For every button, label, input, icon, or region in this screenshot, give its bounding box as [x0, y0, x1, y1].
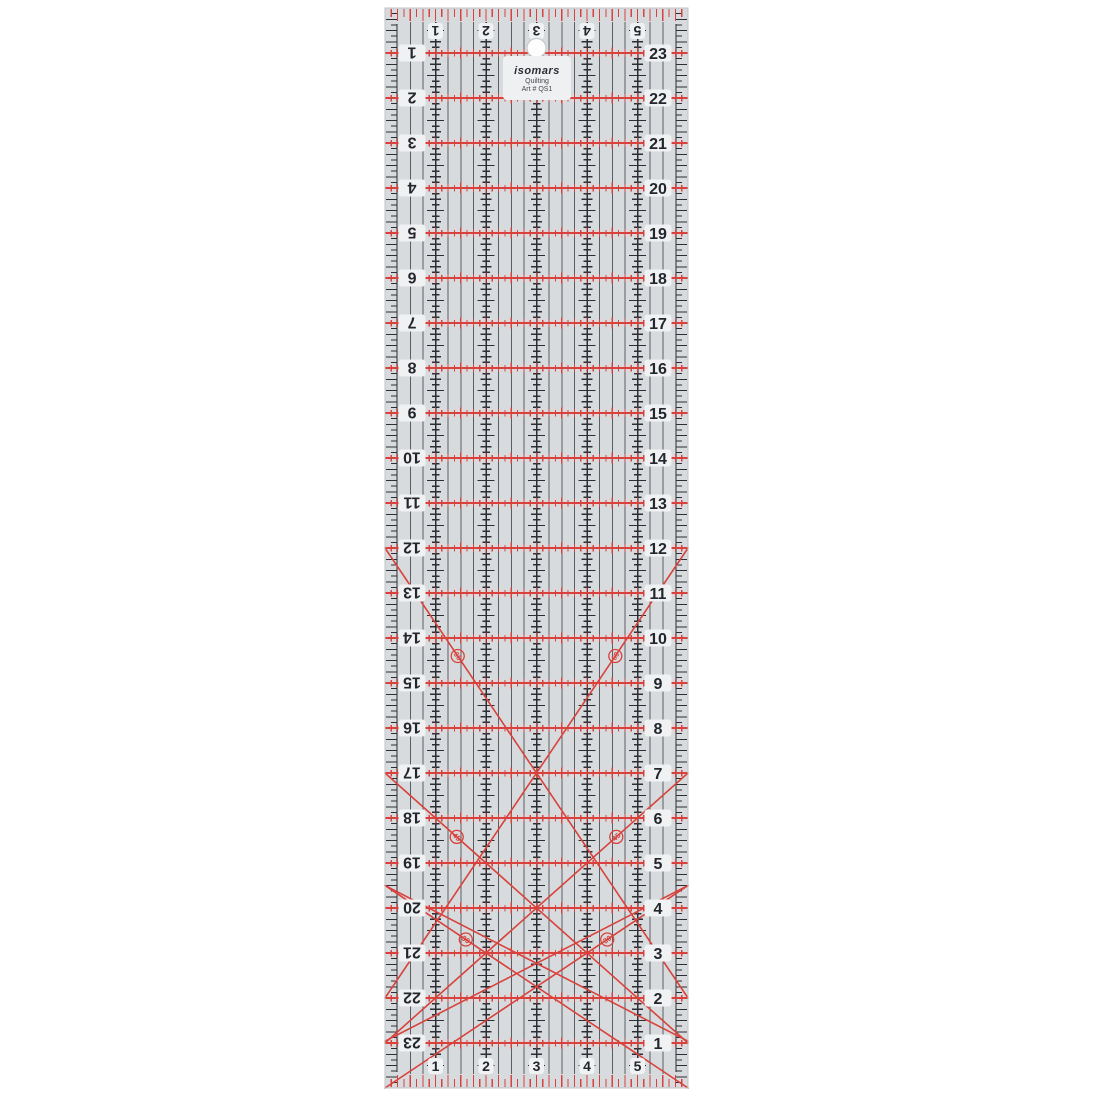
bottom-scale-number: 4 [583, 1058, 591, 1074]
right-scale-number: 22 [649, 91, 667, 108]
bottom-scale-number: 3 [533, 1058, 541, 1074]
right-scale-number: 11 [650, 586, 667, 603]
bottom-scale-number: 5 [634, 1058, 642, 1074]
left-scale-number: 4 [407, 178, 416, 195]
right-scale-number: 14 [649, 451, 667, 468]
brand-product-line: Quilting [503, 78, 571, 86]
bottom-scale-number: 2 [482, 1058, 490, 1074]
top-scale-number: 3 [532, 23, 540, 39]
brand-name: isomars [503, 65, 571, 78]
right-scale-number: 3 [654, 946, 663, 963]
top-scale-number: 1 [431, 23, 439, 39]
left-scale-number: 21 [403, 943, 421, 960]
left-scale-number: 10 [403, 448, 421, 465]
top-scale-number: 2 [482, 23, 490, 39]
right-scale-number: 8 [654, 721, 663, 738]
left-scale-number: 9 [407, 403, 416, 420]
brand-art-number: Art # QS1 [503, 86, 571, 94]
left-scale-number: 14 [403, 628, 421, 645]
left-scale-number: 18 [403, 808, 421, 825]
left-scale-number: 15 [403, 673, 421, 690]
right-scale-number: 1 [654, 1036, 663, 1053]
right-scale-number: 4 [654, 901, 663, 918]
right-scale-number: 19 [649, 226, 667, 243]
left-scale-number: 1 [407, 43, 416, 60]
left-scale-number: 16 [403, 718, 421, 735]
right-scale-number: 13 [649, 496, 667, 513]
right-scale-number: 18 [649, 271, 667, 288]
left-scale-number: 11 [403, 493, 420, 510]
right-scale-number: 10 [649, 631, 667, 648]
right-scale-number: 2 [654, 991, 663, 1008]
product-photo: 6060454530301234567891011121314151617181… [0, 0, 1100, 1100]
right-scale-number: 23 [649, 46, 667, 63]
left-scale-number: 13 [403, 583, 421, 600]
right-scale-number: 9 [654, 676, 663, 693]
right-scale-number: 16 [649, 361, 667, 378]
left-scale-number: 22 [403, 988, 421, 1005]
left-scale-number: 3 [407, 133, 416, 150]
left-scale-number: 8 [407, 358, 416, 375]
left-scale-number: 2 [407, 88, 416, 105]
left-scale-number: 5 [407, 223, 416, 240]
right-scale-number: 5 [654, 856, 663, 873]
left-scale-number: 19 [403, 853, 421, 870]
bottom-scale-number: 1 [432, 1058, 440, 1074]
right-scale-number: 15 [649, 406, 667, 423]
brand-label: isomars Quilting Art # QS1 [503, 56, 571, 100]
left-scale-number: 17 [403, 763, 421, 780]
right-scale-number: 7 [654, 766, 663, 783]
left-scale-number: 7 [407, 313, 416, 330]
right-scale-number: 12 [649, 541, 667, 558]
right-scale-number: 21 [649, 136, 667, 153]
left-scale-number: 23 [403, 1033, 421, 1050]
left-scale-number: 6 [407, 268, 416, 285]
right-scale-number: 6 [654, 811, 663, 828]
left-scale-number: 12 [403, 538, 421, 555]
top-scale-number: 5 [633, 23, 641, 39]
right-scale-number: 20 [649, 181, 667, 198]
quilting-ruler: 6060454530301234567891011121314151617181… [0, 0, 1100, 1100]
hanging-hole [527, 39, 546, 58]
top-scale-number: 4 [583, 23, 591, 39]
left-scale-number: 20 [403, 898, 421, 915]
right-scale-number: 17 [649, 316, 667, 333]
